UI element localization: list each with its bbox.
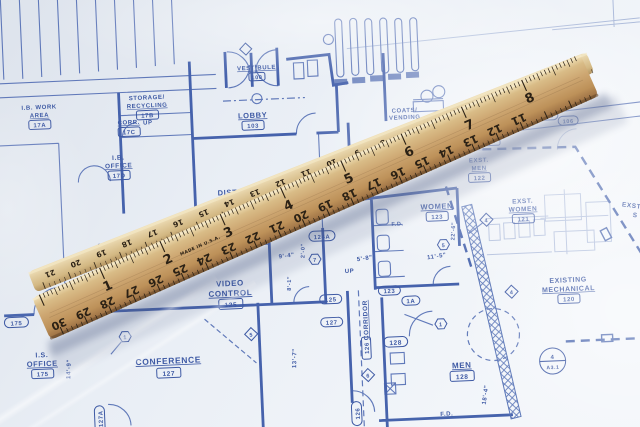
svg-text:1A: 1A	[406, 299, 415, 305]
svg-text:6: 6	[366, 373, 370, 379]
svg-text:127: 127	[326, 320, 338, 327]
svg-text:5: 5	[249, 333, 253, 339]
svg-text:13'-7": 13'-7"	[292, 348, 298, 368]
svg-text:17D: 17D	[113, 173, 126, 180]
svg-text:8'-1": 8'-1"	[287, 276, 293, 291]
svg-text:1: 1	[439, 322, 443, 328]
svg-text:126: 126	[365, 342, 372, 354]
svg-text:128: 128	[456, 374, 469, 382]
svg-text:175: 175	[37, 372, 49, 379]
svg-text:I.B.: I.B.	[112, 154, 125, 162]
svg-text:103: 103	[247, 124, 259, 131]
svg-text:OFFICE: OFFICE	[105, 162, 133, 170]
svg-text:123: 123	[383, 289, 395, 296]
svg-text:LOBBY: LOBBY	[238, 110, 268, 120]
svg-text:127: 127	[162, 370, 175, 378]
svg-text:17C: 17C	[123, 130, 136, 137]
up-text: UP	[143, 120, 153, 126]
up-text-2: UP	[345, 269, 355, 275]
scene: I.B. WORK AREA 17A STORAGE/ RECYCLING 17…	[0, 0, 640, 427]
fd-text-2: F.D.	[440, 411, 453, 418]
svg-text:17B: 17B	[141, 113, 154, 120]
svg-text:128: 128	[389, 340, 402, 348]
svg-text:126: 126	[355, 407, 362, 419]
blueprint-photo: I.B. WORK AREA 17A STORAGE/ RECYCLING 17…	[0, 0, 640, 427]
svg-text:CORR.: CORR.	[118, 120, 141, 127]
svg-text:127A: 127A	[98, 410, 105, 427]
svg-text:125: 125	[325, 297, 337, 304]
